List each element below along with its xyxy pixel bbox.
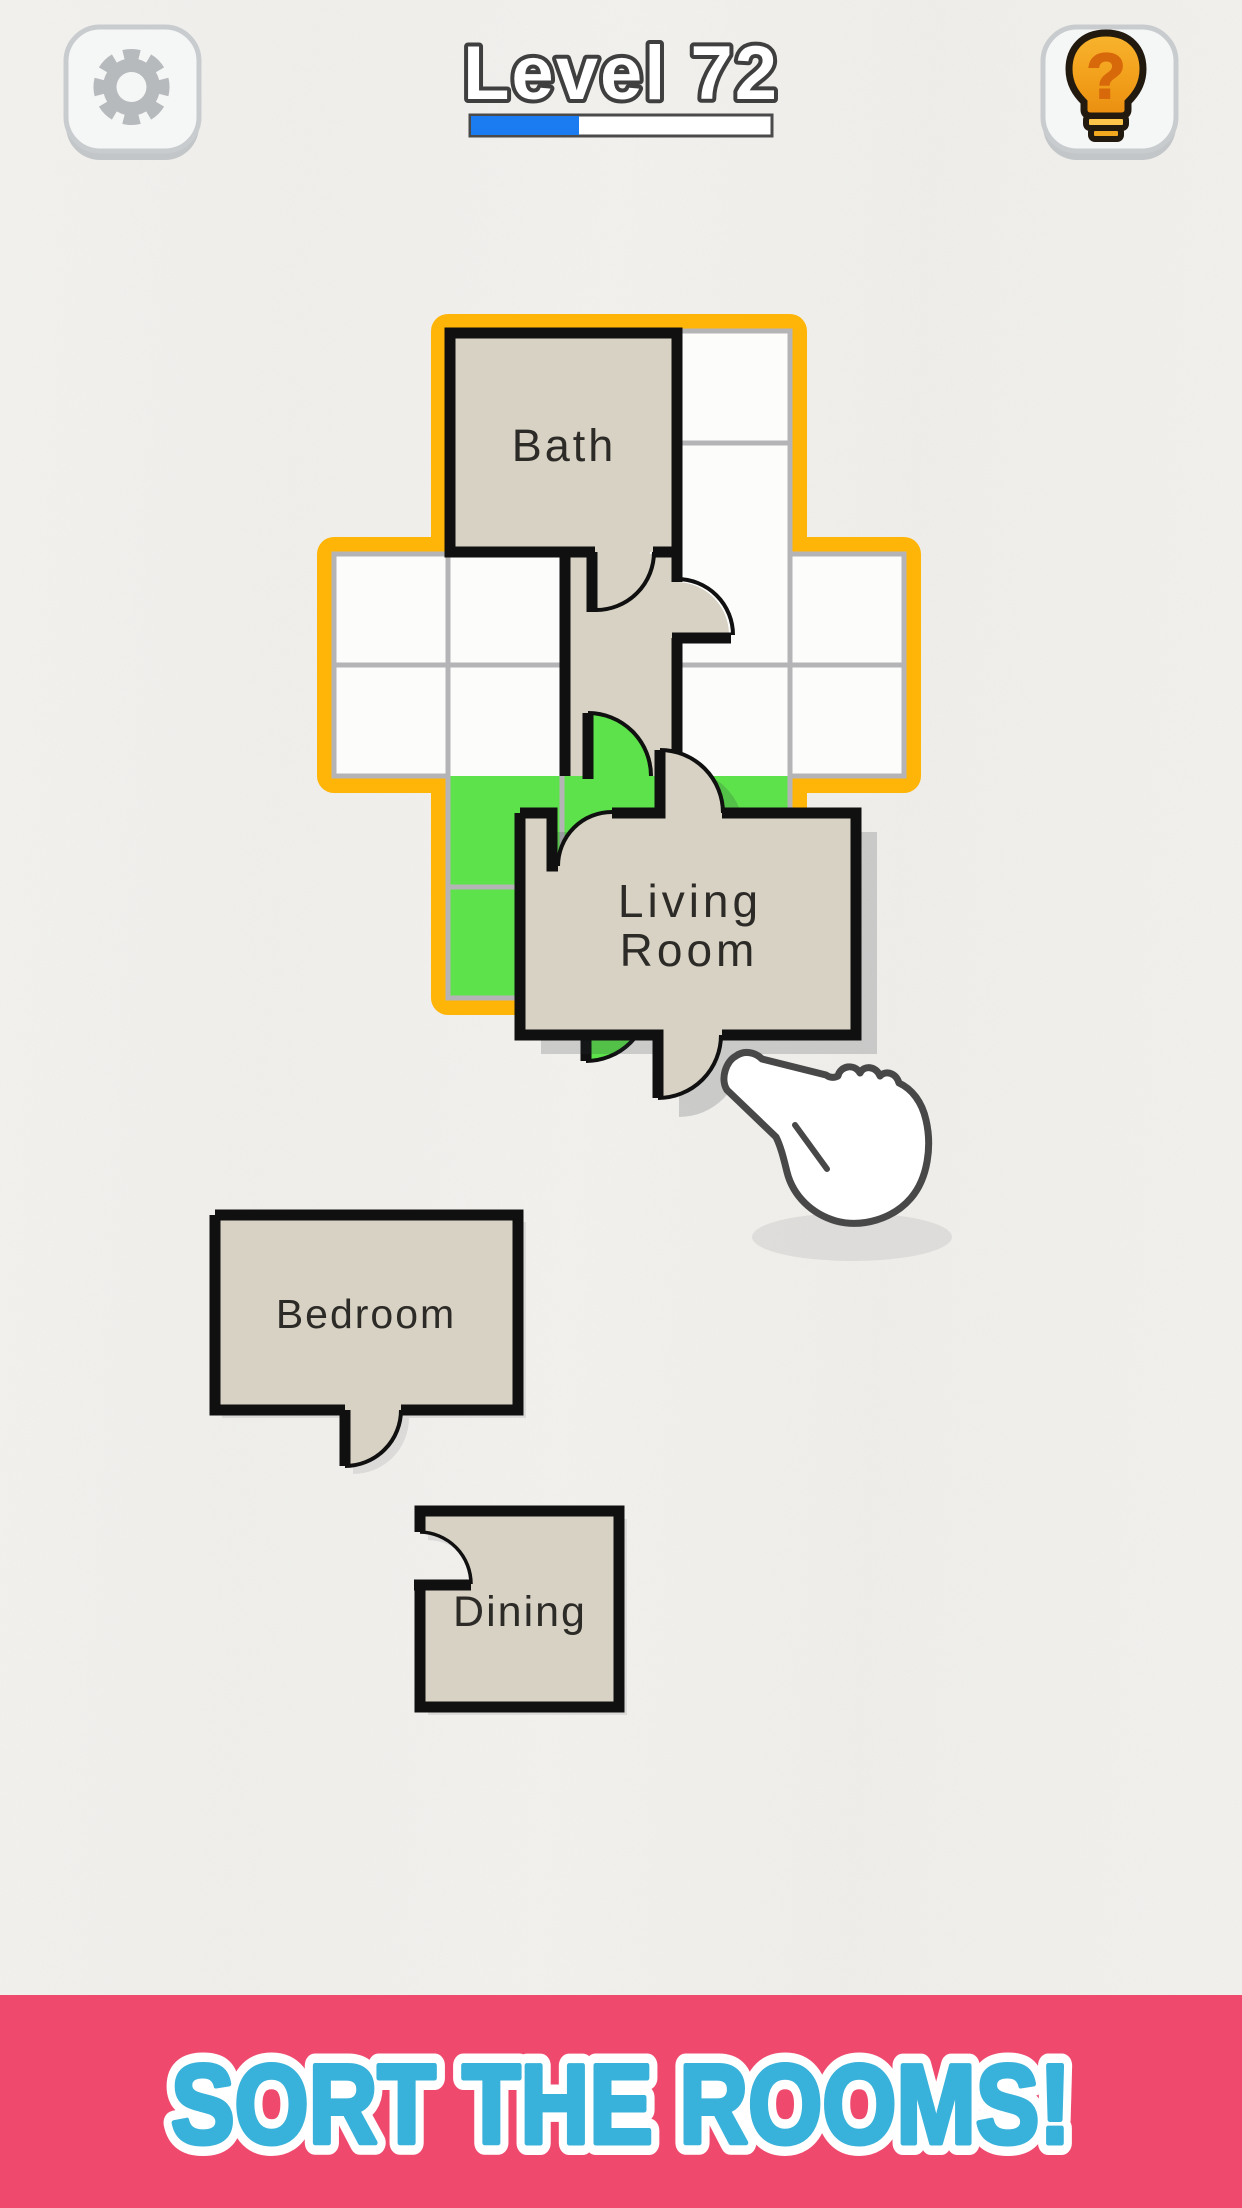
svg-text:Dining: Dining [453, 1588, 587, 1636]
svg-text:?: ? [1086, 40, 1125, 112]
svg-text:Bedroom: Bedroom [276, 1291, 456, 1337]
svg-text:Bath: Bath [512, 420, 617, 471]
svg-text:Living: Living [618, 875, 762, 927]
svg-text:SORT THE ROOMS!: SORT THE ROOMS! [171, 2042, 1071, 2167]
svg-text:Room: Room [620, 924, 759, 976]
svg-text:Level 72: Level 72 [463, 31, 779, 116]
